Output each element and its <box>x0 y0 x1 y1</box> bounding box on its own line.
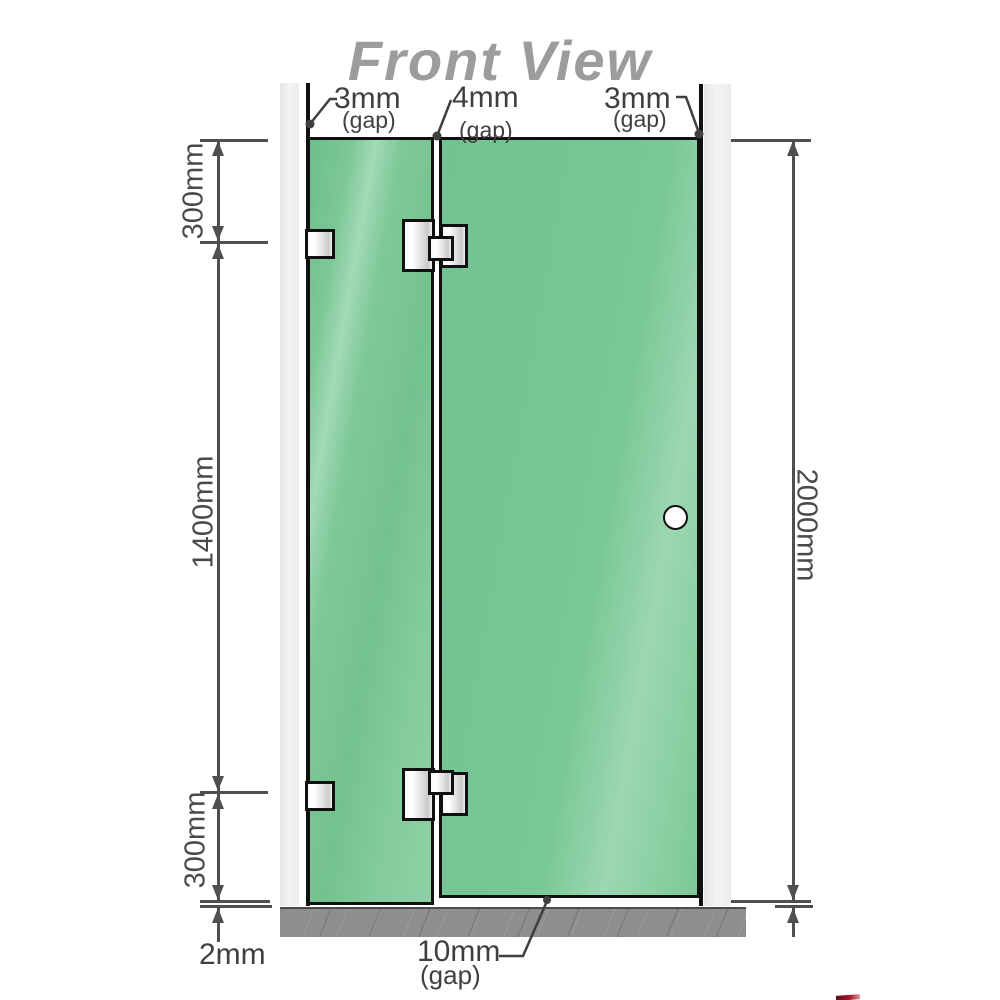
dimension-label-2mm: 2mm <box>199 938 266 972</box>
left-wall <box>280 83 299 906</box>
arrow-down-icon <box>212 776 224 791</box>
dimension-label-2000mm: 2000mm <box>790 469 823 582</box>
tick-glass-top-right <box>731 139 811 142</box>
gap-label-top-middle-value: 4mm <box>452 81 519 115</box>
tick-glass-top-left <box>200 139 268 142</box>
tick-glass-bottom-right <box>731 900 811 903</box>
arrow-down-icon <box>212 226 224 241</box>
upper-hinge-tab <box>428 236 454 261</box>
tick-upper-hinge <box>200 241 268 244</box>
dimension-label-1400mm: 1400mm <box>188 456 221 569</box>
tick-glass-bottom-left <box>200 900 270 903</box>
gap-label-top-right-unit: (gap) <box>613 106 667 133</box>
door-knob <box>663 505 688 530</box>
dimension-label-300mm-top: 300mm <box>178 143 211 240</box>
gap-label-bottom-unit: (gap) <box>420 960 481 991</box>
arrow-up-icon <box>212 141 224 156</box>
red-watermark <box>836 994 860 1000</box>
arrow-down-icon <box>787 885 799 900</box>
arrow-up-icon <box>787 908 799 923</box>
arrow-down-icon <box>212 885 224 900</box>
arrow-up-icon <box>212 794 224 809</box>
lower-wall-bracket <box>305 781 335 811</box>
tick-floor-left <box>200 905 272 908</box>
gap-label-top-left-unit: (gap) <box>342 107 396 134</box>
dimension-label-300mm-bottom: 300mm <box>180 792 213 889</box>
lower-hinge-tab <box>428 770 454 795</box>
upper-wall-bracket <box>305 229 335 259</box>
right-wall <box>704 84 731 906</box>
arrow-up-icon <box>212 908 224 923</box>
arrow-up-icon <box>787 141 799 156</box>
arrow-up-icon <box>212 244 224 259</box>
front-view-diagram: Front View 300mm 1400mm 300mm 2000mm 2mm… <box>0 0 1000 1000</box>
door-glass-panel <box>439 137 700 898</box>
floor-slab <box>280 907 746 937</box>
gap-label-top-middle-unit: (gap) <box>459 117 513 144</box>
